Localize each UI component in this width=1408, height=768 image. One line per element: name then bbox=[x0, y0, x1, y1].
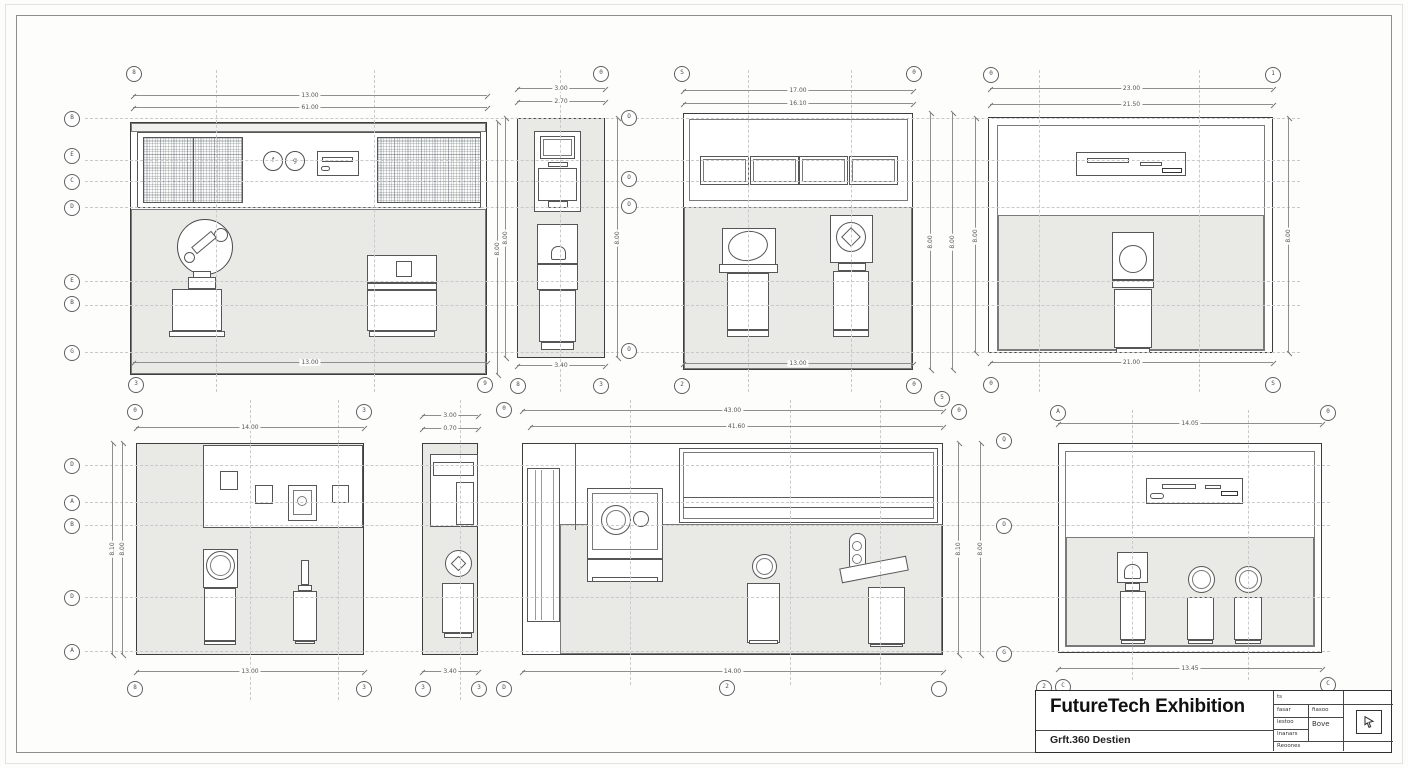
pedestal bbox=[442, 583, 474, 633]
centerline bbox=[790, 400, 791, 685]
kiosk-screen-inner bbox=[543, 139, 572, 156]
exhibit-sphere bbox=[1119, 245, 1147, 273]
grid-bubble: O bbox=[621, 198, 637, 214]
dimension-line: 8.00 bbox=[122, 443, 123, 655]
control-slot bbox=[1205, 485, 1221, 489]
dimension-label: 14.05 bbox=[1179, 420, 1200, 427]
cabinet-display-cube bbox=[396, 261, 412, 277]
grid-bubble: S bbox=[674, 66, 690, 82]
grid-bubble: 8 bbox=[126, 66, 142, 82]
titleblock-cell: Inanars bbox=[1277, 731, 1297, 737]
pedestal-base bbox=[1121, 640, 1145, 644]
dimension-label: 8.00 bbox=[949, 233, 956, 250]
keynote-symbol: g bbox=[285, 151, 305, 171]
mesh-panel-right bbox=[377, 137, 481, 203]
mesh-panel-divider bbox=[193, 138, 194, 202]
pedestal bbox=[747, 583, 780, 643]
grid-bubble: 8 bbox=[510, 378, 526, 394]
grid-bubble: O bbox=[621, 110, 637, 126]
grid-bubble: E bbox=[64, 274, 80, 290]
grid-bubble: S bbox=[1265, 377, 1281, 393]
case-shelf bbox=[537, 264, 578, 290]
case-plinth-base bbox=[592, 577, 658, 582]
pedestal-base bbox=[1188, 640, 1213, 644]
cursor-icon bbox=[1361, 714, 1377, 730]
dimension-line: 8.00 bbox=[952, 113, 953, 370]
dimension-line: 3.00 bbox=[517, 88, 605, 89]
dimension-label: 8.00 bbox=[494, 240, 501, 257]
grid-bubble: 5 bbox=[934, 391, 950, 407]
table-line bbox=[1273, 729, 1308, 730]
dimension-label: 13.00 bbox=[787, 360, 808, 367]
dimension-line: 41.60 bbox=[530, 426, 943, 427]
dimension-label: 14.00 bbox=[239, 424, 260, 431]
titleblock-cell: lestoo bbox=[1277, 719, 1294, 725]
gridline bbox=[85, 502, 1330, 503]
gridline bbox=[85, 181, 1300, 182]
dimension-line: 14.00 bbox=[136, 427, 364, 428]
dimension-line: 16.10 bbox=[683, 103, 913, 104]
pedestal-base bbox=[204, 641, 236, 645]
ring-inner bbox=[1192, 570, 1211, 589]
dimension-label: 8.00 bbox=[927, 233, 934, 250]
grid-bubble: 3 bbox=[471, 681, 487, 697]
control-button bbox=[1162, 168, 1182, 173]
dimension-line: 13.00 bbox=[136, 671, 364, 672]
dimension-line: 13.45 bbox=[1058, 668, 1322, 669]
dimension-label: 61.00 bbox=[299, 104, 320, 111]
grid-bubble: 2 bbox=[719, 680, 735, 696]
title-block: FutureTech Exhibition Grft.360 Destien t… bbox=[1035, 690, 1392, 753]
dimension-line: 0.70 bbox=[422, 428, 478, 429]
grid-bubble: 3 bbox=[415, 681, 431, 697]
grid-bubble: B bbox=[64, 518, 80, 534]
dimension-label: 8.00 bbox=[977, 540, 984, 557]
kiosk-screen-main bbox=[538, 168, 577, 201]
dimension-label: 3.00 bbox=[441, 412, 458, 419]
signage-pill bbox=[321, 166, 330, 171]
pedestal bbox=[1187, 597, 1214, 640]
window-glass bbox=[703, 159, 746, 182]
grid-bubble: G bbox=[996, 646, 1012, 662]
window-glass bbox=[753, 159, 796, 182]
dimension-label: 8.10 bbox=[955, 540, 962, 557]
dimension-label: 8.00 bbox=[1285, 227, 1292, 244]
gridline bbox=[85, 352, 1300, 353]
dimension-line: 17.00 bbox=[683, 90, 913, 91]
case-sphere-inner bbox=[606, 510, 626, 530]
dimension-label: 8.00 bbox=[972, 227, 979, 244]
dimension-label: 21.50 bbox=[1121, 101, 1142, 108]
dimension-line: 8.00 bbox=[930, 113, 931, 370]
dimension-line: 8.10 bbox=[112, 443, 113, 655]
table-line bbox=[1343, 691, 1344, 751]
dimension-label: 8.00 bbox=[119, 540, 126, 557]
grid-bubble: B bbox=[64, 111, 80, 127]
grid-bubble: C bbox=[64, 174, 80, 190]
dimension-label: 43.00 bbox=[722, 407, 743, 414]
titleblock-cell: fasar bbox=[1277, 707, 1291, 713]
dimension-label: 16.10 bbox=[787, 100, 808, 107]
dimension-line: 14.05 bbox=[1058, 423, 1322, 424]
centerline bbox=[250, 400, 251, 700]
dimension-line: 61.00 bbox=[133, 107, 487, 108]
grid-bubble: D bbox=[496, 681, 512, 697]
dimension-line: 13.00 bbox=[133, 95, 487, 96]
band-rail bbox=[683, 507, 934, 508]
title-divider bbox=[1036, 730, 1273, 731]
centerline bbox=[560, 70, 561, 392]
door-column bbox=[527, 468, 560, 622]
pedestal bbox=[1114, 289, 1152, 348]
titleblock-cell: Bove bbox=[1312, 720, 1330, 728]
dimension-line: 14.00 bbox=[522, 671, 943, 672]
project-title: FutureTech Exhibition bbox=[1050, 696, 1245, 718]
gridline bbox=[85, 281, 1300, 282]
partition-line bbox=[575, 444, 576, 530]
table-line bbox=[1273, 741, 1393, 742]
gridline bbox=[85, 118, 1300, 119]
grid-bubble: A bbox=[64, 644, 80, 660]
centerline bbox=[630, 400, 631, 685]
centerline bbox=[851, 70, 852, 392]
grid-bubble: O bbox=[621, 171, 637, 187]
band-rail bbox=[683, 497, 934, 498]
grid-bubble: 0 bbox=[906, 378, 922, 394]
grid-bubble: B bbox=[64, 296, 80, 312]
dimension-label: 13.00 bbox=[239, 668, 260, 675]
window-glass bbox=[802, 159, 845, 182]
table-line bbox=[1273, 717, 1343, 718]
dimension-line: 43.00 bbox=[522, 410, 943, 411]
north-arrow-box bbox=[1356, 710, 1382, 734]
gridline bbox=[85, 160, 1300, 161]
dimension-line: 8.00 bbox=[1288, 118, 1289, 353]
dimension-label: 3.00 bbox=[552, 85, 569, 92]
grid-bubble: Q bbox=[996, 433, 1012, 449]
cabinet-body bbox=[367, 290, 437, 331]
dimension-line: 8.00 bbox=[980, 443, 981, 655]
keynote-symbol: f bbox=[263, 151, 283, 171]
titleblock-cell: Reoones bbox=[1277, 743, 1300, 749]
grid-bubble: D bbox=[64, 458, 80, 474]
bottle-base bbox=[295, 641, 315, 644]
gridline bbox=[85, 207, 1300, 208]
centerline bbox=[216, 70, 217, 392]
titleblock-cell: ts bbox=[1277, 694, 1282, 700]
pedestal-base bbox=[541, 342, 574, 350]
table-line bbox=[1273, 691, 1274, 751]
signage-box bbox=[317, 151, 359, 176]
side-screen bbox=[456, 482, 474, 525]
art-square bbox=[220, 471, 238, 490]
gridline bbox=[85, 305, 1300, 306]
grid-bubble: D bbox=[64, 200, 80, 216]
control-pill bbox=[1150, 493, 1164, 499]
dimension-line: 3.40 bbox=[517, 365, 605, 366]
grid-bubble: D bbox=[64, 590, 80, 606]
dimension-line: 21.00 bbox=[990, 362, 1273, 363]
pedestal-base bbox=[444, 633, 472, 638]
robot-arm-joint bbox=[184, 252, 195, 263]
dimension-label: 3.40 bbox=[441, 668, 458, 675]
pedestal bbox=[539, 290, 576, 342]
dimension-label: 3.40 bbox=[552, 362, 569, 369]
grid-bubble: 3 bbox=[356, 681, 372, 697]
centerline bbox=[748, 70, 749, 392]
exhibit-object bbox=[551, 246, 566, 260]
capsule-dot bbox=[852, 554, 862, 564]
grid-bubble: E bbox=[64, 148, 80, 164]
pedestal bbox=[172, 289, 222, 331]
dimension-label: 13.00 bbox=[299, 359, 320, 366]
centerline bbox=[338, 400, 339, 700]
table-line bbox=[1308, 704, 1309, 741]
porthole-inner bbox=[210, 555, 231, 576]
dimension-line: 2.70 bbox=[517, 101, 605, 102]
dimension-line: 3.00 bbox=[422, 415, 478, 416]
grid-bubble: 3 bbox=[593, 378, 609, 394]
dimension-label: 14.00 bbox=[722, 668, 743, 675]
dimension-label: 21.00 bbox=[1121, 359, 1142, 366]
dimension-label: 8.00 bbox=[614, 229, 621, 246]
grid-bubble: A bbox=[64, 495, 80, 511]
grid-bubble: 3 bbox=[128, 377, 144, 393]
grid-bubble: 0 bbox=[906, 66, 922, 82]
clock-inner bbox=[756, 558, 773, 575]
centerline bbox=[1132, 410, 1133, 680]
dimension-line: 8.10 bbox=[958, 443, 959, 655]
art-square bbox=[332, 485, 349, 503]
dimension-label: 23.00 bbox=[1121, 85, 1142, 92]
art-detail bbox=[297, 496, 307, 506]
grid-bubble: 8 bbox=[127, 681, 143, 697]
kiosk-shelf bbox=[548, 162, 568, 167]
grid-bubble: 0 bbox=[1320, 405, 1336, 421]
bottle-body bbox=[293, 591, 317, 641]
grid-bubble: 0 bbox=[496, 402, 512, 418]
dimension-line: 23.00 bbox=[990, 88, 1273, 89]
dimension-label: 8.00 bbox=[502, 229, 509, 246]
pedestal bbox=[1120, 591, 1146, 640]
grid-bubble: O bbox=[621, 343, 637, 359]
gridline bbox=[85, 651, 1330, 652]
dimension-line: 13.00 bbox=[133, 362, 487, 363]
grid-bubble: 0 bbox=[983, 67, 999, 83]
dimension-label: 13.00 bbox=[299, 92, 320, 99]
bottle-handle bbox=[301, 560, 309, 585]
dimension-label: 17.00 bbox=[787, 87, 808, 94]
crate-base bbox=[870, 644, 903, 647]
dimension-line: 8.00 bbox=[505, 118, 506, 358]
titleblock-cell: fiasoo bbox=[1312, 707, 1328, 713]
dimension-line: 13.00 bbox=[683, 363, 913, 364]
control-slot bbox=[1162, 484, 1196, 489]
centerline bbox=[460, 400, 461, 700]
project-subtitle: Grft.360 Destien bbox=[1050, 734, 1131, 746]
fascia-band bbox=[131, 123, 486, 132]
gridline bbox=[85, 597, 1330, 598]
cabinet-band bbox=[367, 283, 437, 290]
dimension-line: 8.00 bbox=[975, 118, 976, 353]
drawing-sheet: f g 13.00 61.00 13.00 8.00 8 3 9 B E C D bbox=[0, 0, 1408, 768]
dimension-line: 8.00 bbox=[497, 122, 498, 375]
dimension-label: 13.45 bbox=[1179, 665, 1200, 672]
grid-bubble: O bbox=[996, 518, 1012, 534]
grid-bubble: 0 bbox=[951, 404, 967, 420]
grid-bubble: A bbox=[1050, 405, 1066, 421]
centerline bbox=[1039, 70, 1040, 392]
grid-bubble bbox=[931, 681, 947, 697]
pedestal bbox=[204, 588, 236, 641]
pedestal-base bbox=[749, 640, 778, 644]
centerline bbox=[1199, 70, 1200, 392]
control-slot bbox=[1140, 162, 1162, 166]
dimension-line: 3.40 bbox=[422, 671, 478, 672]
dimension-label: 41.60 bbox=[726, 423, 747, 430]
dimension-label: 2.70 bbox=[552, 98, 569, 105]
cabinet-base bbox=[369, 331, 435, 337]
crate bbox=[868, 587, 905, 644]
table-line bbox=[1273, 704, 1393, 705]
dimension-label: 8.10 bbox=[109, 540, 116, 557]
dimension-label: 0.70 bbox=[441, 425, 458, 432]
dimension-line: 8.00 bbox=[617, 118, 618, 358]
grid-bubble: 3 bbox=[356, 404, 372, 420]
gridline bbox=[85, 525, 1330, 526]
centerline bbox=[1248, 410, 1249, 680]
grid-bubble: 0 bbox=[983, 377, 999, 393]
window-glass bbox=[852, 159, 895, 182]
back-wall bbox=[684, 207, 912, 369]
case-stand bbox=[838, 263, 866, 271]
gridline bbox=[85, 465, 1330, 466]
grid-bubble: 1 bbox=[1265, 67, 1281, 83]
capsule-dot bbox=[852, 541, 862, 551]
grid-bubble: 0 bbox=[127, 404, 143, 420]
robot-mount-plate bbox=[188, 277, 216, 289]
centerline bbox=[880, 400, 881, 685]
grid-bubble: 0 bbox=[593, 66, 609, 82]
grid-bubble: G bbox=[64, 345, 80, 361]
control-button bbox=[1221, 491, 1238, 496]
grid-bubble: 2 bbox=[674, 378, 690, 394]
centerline bbox=[374, 70, 375, 392]
dimension-line: 21.50 bbox=[990, 104, 1273, 105]
display-band-inner bbox=[683, 452, 934, 519]
grid-bubble: 9 bbox=[477, 377, 493, 393]
